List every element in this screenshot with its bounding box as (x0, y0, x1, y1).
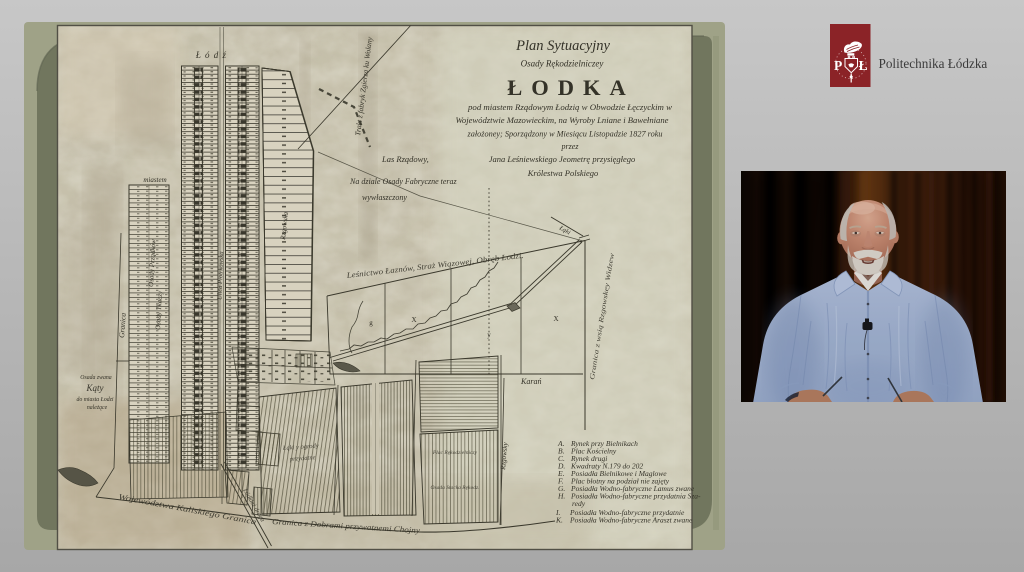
svg-text:X: X (553, 315, 558, 323)
svg-text:Kąty: Kąty (86, 383, 104, 393)
svg-text:Karań: Karań (520, 377, 541, 386)
svg-text:przez: przez (561, 142, 580, 151)
svg-text:X: X (411, 316, 416, 324)
svg-text:Plan Sytuacyjny: Plan Sytuacyjny (515, 38, 610, 54)
svg-text:g: g (369, 319, 373, 327)
svg-text:Las Rządowy,: Las Rządowy, (381, 154, 429, 164)
svg-text:Jana Leśniewskiego Jeometrę pr: Jana Leśniewskiego Jeometrę przysięgłego (489, 154, 636, 164)
svg-text:Ł: Ł (859, 58, 868, 73)
svg-text:miastem: miastem (143, 176, 166, 184)
svg-text:P: P (834, 58, 842, 73)
svg-text:H.: H. (557, 492, 565, 501)
svg-text:Posiadła Wodno-fabryczne przyd: Posiadła Wodno-fabryczne przydatnia Sza- (570, 492, 701, 501)
svg-text:należące: należące (87, 405, 108, 411)
svg-text:Politechnika Łódzka: Politechnika Łódzka (879, 56, 988, 71)
svg-text:Na dziale Osady Fabryczne tera: Na dziale Osady Fabryczne teraz (349, 177, 458, 186)
svg-text:Królestwa Polskiego: Królestwa Polskiego (527, 168, 599, 178)
svg-text:redy: redy (572, 499, 586, 508)
svg-text:Plac Rękodzielniczy: Plac Rękodzielniczy (432, 450, 478, 456)
svg-text:założoney; Sporządzony w Miesi: założoney; Sporządzony w Miesiącu Listop… (467, 129, 663, 139)
svg-text:pod miastem Rządowym Łodzią w: pod miastem Rządowym Łodzią w Obwodzie Ł… (467, 102, 672, 112)
svg-text:K.: K. (555, 516, 563, 525)
svg-text:Osada zwana: Osada zwana (80, 375, 112, 381)
svg-text:Granica: Granica (117, 312, 128, 338)
svg-text:Osada Stacka Rękodz.: Osada Stacka Rękodz. (430, 485, 479, 491)
svg-text:Łódź: Łódź (195, 50, 230, 60)
svg-text:Posiadła Wodno-fabryczne Arasz: Posiadła Wodno-fabryczne Araszt zwane (569, 516, 693, 525)
svg-text:y: y (487, 331, 491, 339)
svg-text:Województwie Mazowieckim, na W: Województwie Mazowieckim, na Wyroby Lnia… (456, 115, 669, 125)
svg-text:ŁODKA: ŁODKA (507, 75, 635, 100)
svg-text:do miasta Łodzi: do miasta Łodzi (76, 397, 113, 403)
svg-text:wywłaszczony: wywłaszczony (362, 193, 407, 202)
svg-text:Osady Rękodzielniczey: Osady Rękodzielniczey (521, 59, 604, 69)
